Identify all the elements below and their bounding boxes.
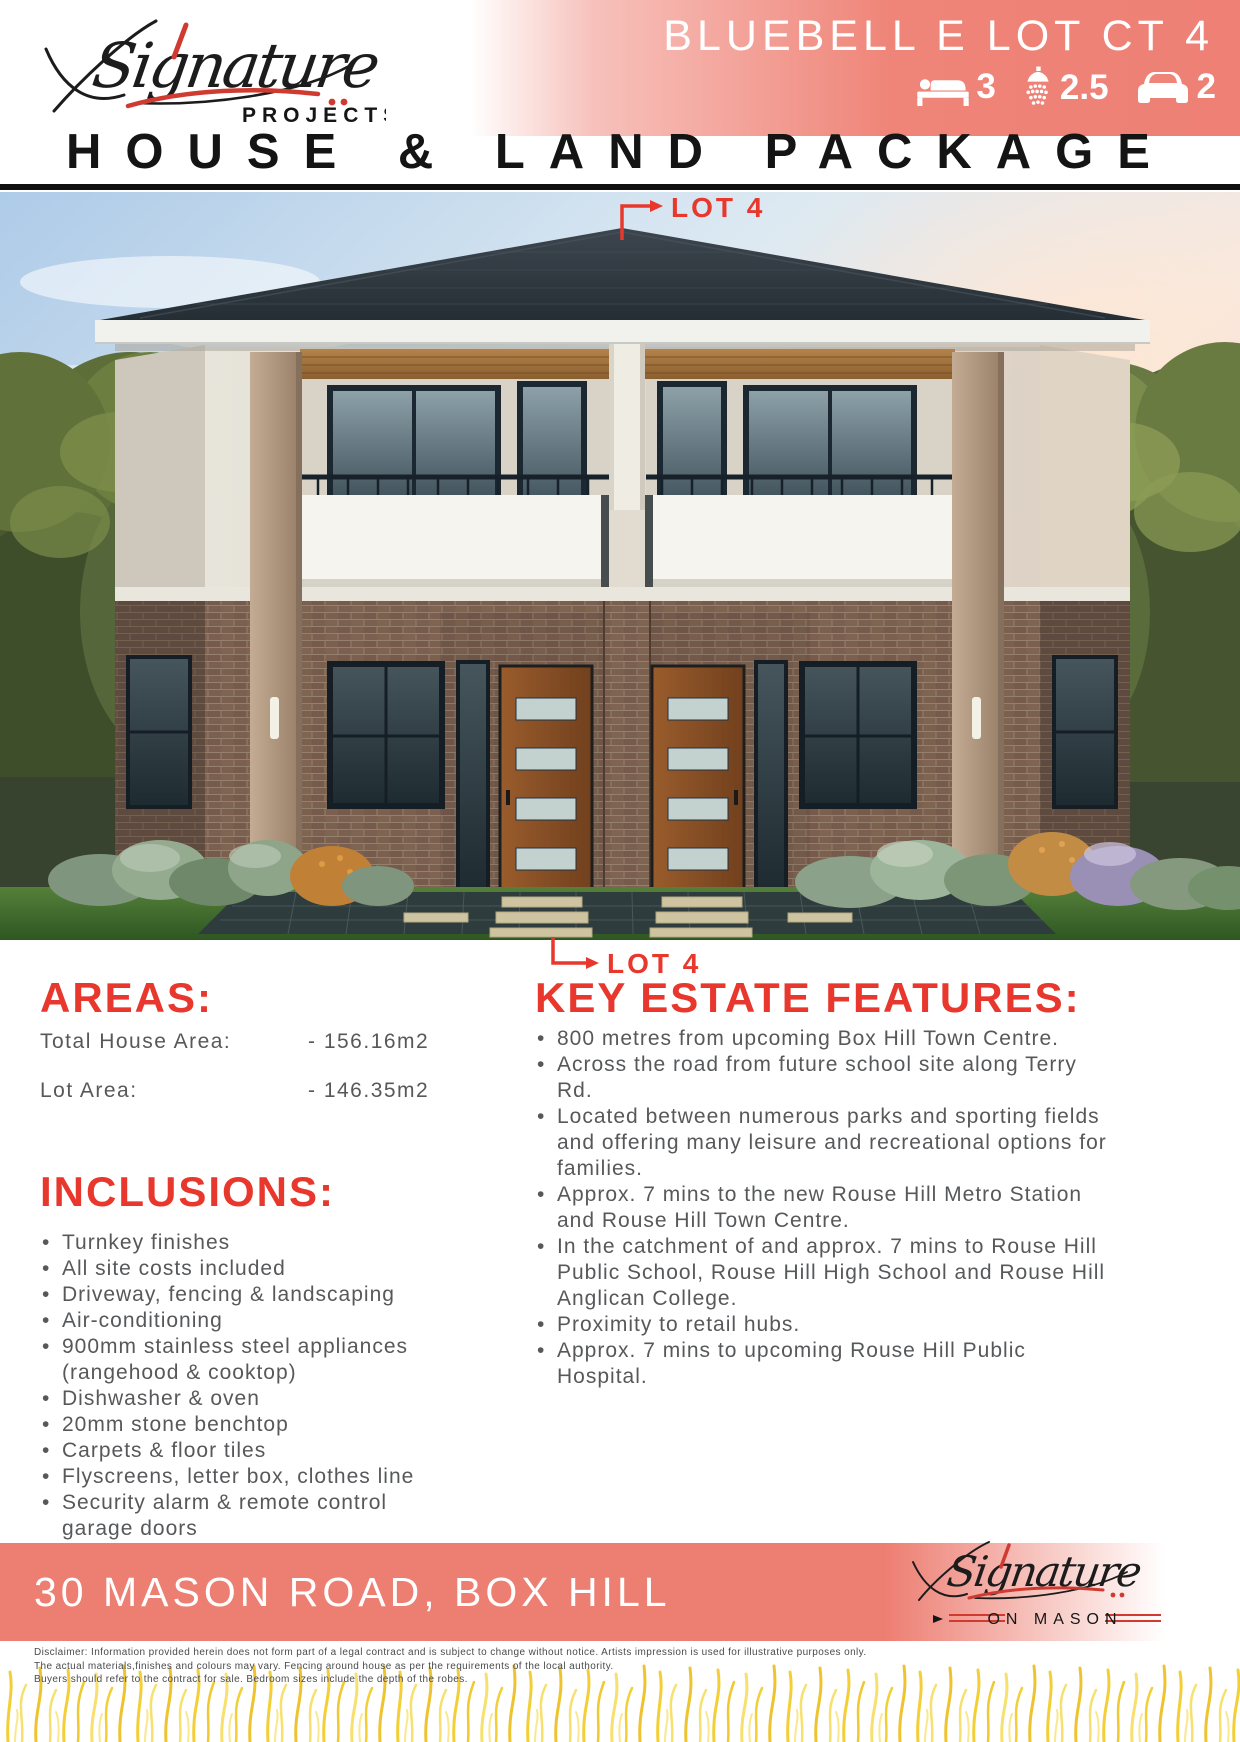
features-heading: KEY ESTATE FEATURES:: [535, 976, 1110, 1020]
features-section: KEY ESTATE FEATURES: 800 metres from upc…: [535, 976, 1110, 1390]
list-item: Dishwasher & oven: [40, 1386, 455, 1412]
list-item: Proximity to retail hubs.: [535, 1312, 1110, 1338]
list-item: Carpets & floor tiles: [40, 1438, 455, 1464]
shower-icon: [1022, 66, 1054, 108]
areas-heading: AREAS:: [40, 976, 490, 1020]
wall-light: [270, 697, 279, 739]
wall-light: [972, 697, 981, 739]
area-row: Lot Area: - 146.35m2: [40, 1079, 490, 1103]
disclaimer-line: Buyers should refer to the contract for …: [34, 1673, 914, 1687]
door-right: [652, 662, 786, 894]
lot-banner-title: BLUEBELL E LOT CT 4: [663, 12, 1214, 61]
property-address: 30 MASON ROAD, BOX HILL: [34, 1569, 671, 1616]
list-item: Flyscreens, letter box, clothes line: [40, 1464, 455, 1490]
lot-banner: BLUEBELL E LOT CT 4 3: [470, 0, 1240, 136]
garage-count: 2: [1197, 67, 1216, 107]
title-divider: [0, 184, 1240, 190]
area-value: - 156.16m2: [308, 1030, 429, 1054]
list-item: Approx. 7 mins to upcoming Rouse Hill Pu…: [535, 1338, 1110, 1390]
areas-section: AREAS: Total House Area: - 156.16m2 Lot …: [40, 976, 490, 1103]
brand-footer-division: ON MASON: [987, 1611, 1122, 1628]
list-item: Air-conditioning: [40, 1308, 455, 1334]
lot-label-top: LOT 4: [671, 192, 765, 223]
logo-arrow: [933, 1615, 943, 1623]
page-title: HOUSE & LAND PACKAGE: [0, 124, 1240, 180]
inclusions-list: Turnkey finishes All site costs included…: [40, 1230, 455, 1542]
list-item: Located between numerous parks and sport…: [535, 1104, 1110, 1182]
bathrooms-stat: 2.5: [1022, 66, 1109, 108]
disclaimer: Disclaimer: Information provided herein …: [34, 1646, 914, 1687]
list-item: All site costs included: [40, 1256, 455, 1282]
bedrooms-count: 3: [976, 67, 995, 107]
list-item: Approx. 7 mins to the new Rouse Hill Met…: [535, 1182, 1110, 1234]
area-label: Lot Area:: [40, 1079, 308, 1103]
list-item: 900mm stainless steel appliances (rangeh…: [40, 1334, 455, 1386]
list-item: Driveway, fencing & landscaping: [40, 1282, 455, 1308]
car-icon: [1135, 69, 1191, 107]
list-item: Across the road from future school site …: [535, 1052, 1110, 1104]
area-value: - 146.35m2: [308, 1079, 429, 1103]
garage-stat: 2: [1135, 67, 1216, 107]
disclaimer-line: Disclaimer: Information provided herein …: [34, 1646, 914, 1660]
features-list: 800 metres from upcoming Box Hill Town C…: [535, 1026, 1110, 1390]
area-row: Total House Area: - 156.16m2: [40, 1030, 490, 1054]
list-item: In the catchment of and approx. 7 mins t…: [535, 1234, 1110, 1312]
door-left: [458, 662, 592, 894]
bedrooms-stat: 3: [916, 67, 995, 107]
inclusions-heading: INCLUSIONS:: [40, 1170, 455, 1214]
disclaimer-line: The actual materials,finishes and colour…: [34, 1660, 914, 1674]
list-item: Security alarm & remote control garage d…: [40, 1490, 455, 1542]
house-render: LOT 4: [0, 192, 1240, 940]
inclusions-section: INCLUSIONS: Turnkey finishes All site co…: [40, 1170, 455, 1542]
property-stats: 3 2.5 2: [898, 66, 1216, 108]
list-item: 20mm stone benchtop: [40, 1412, 455, 1438]
area-label: Total House Area:: [40, 1030, 308, 1054]
list-item: Turnkey finishes: [40, 1230, 455, 1256]
bathrooms-count: 2.5: [1060, 68, 1109, 108]
brand-logo: Signature PROJECTS: [36, 8, 386, 128]
footer-brand-logo: Signature ON MASON: [905, 1536, 1205, 1631]
bed-icon: [916, 70, 970, 107]
list-item: 800 metres from upcoming Box Hill Town C…: [535, 1026, 1110, 1052]
